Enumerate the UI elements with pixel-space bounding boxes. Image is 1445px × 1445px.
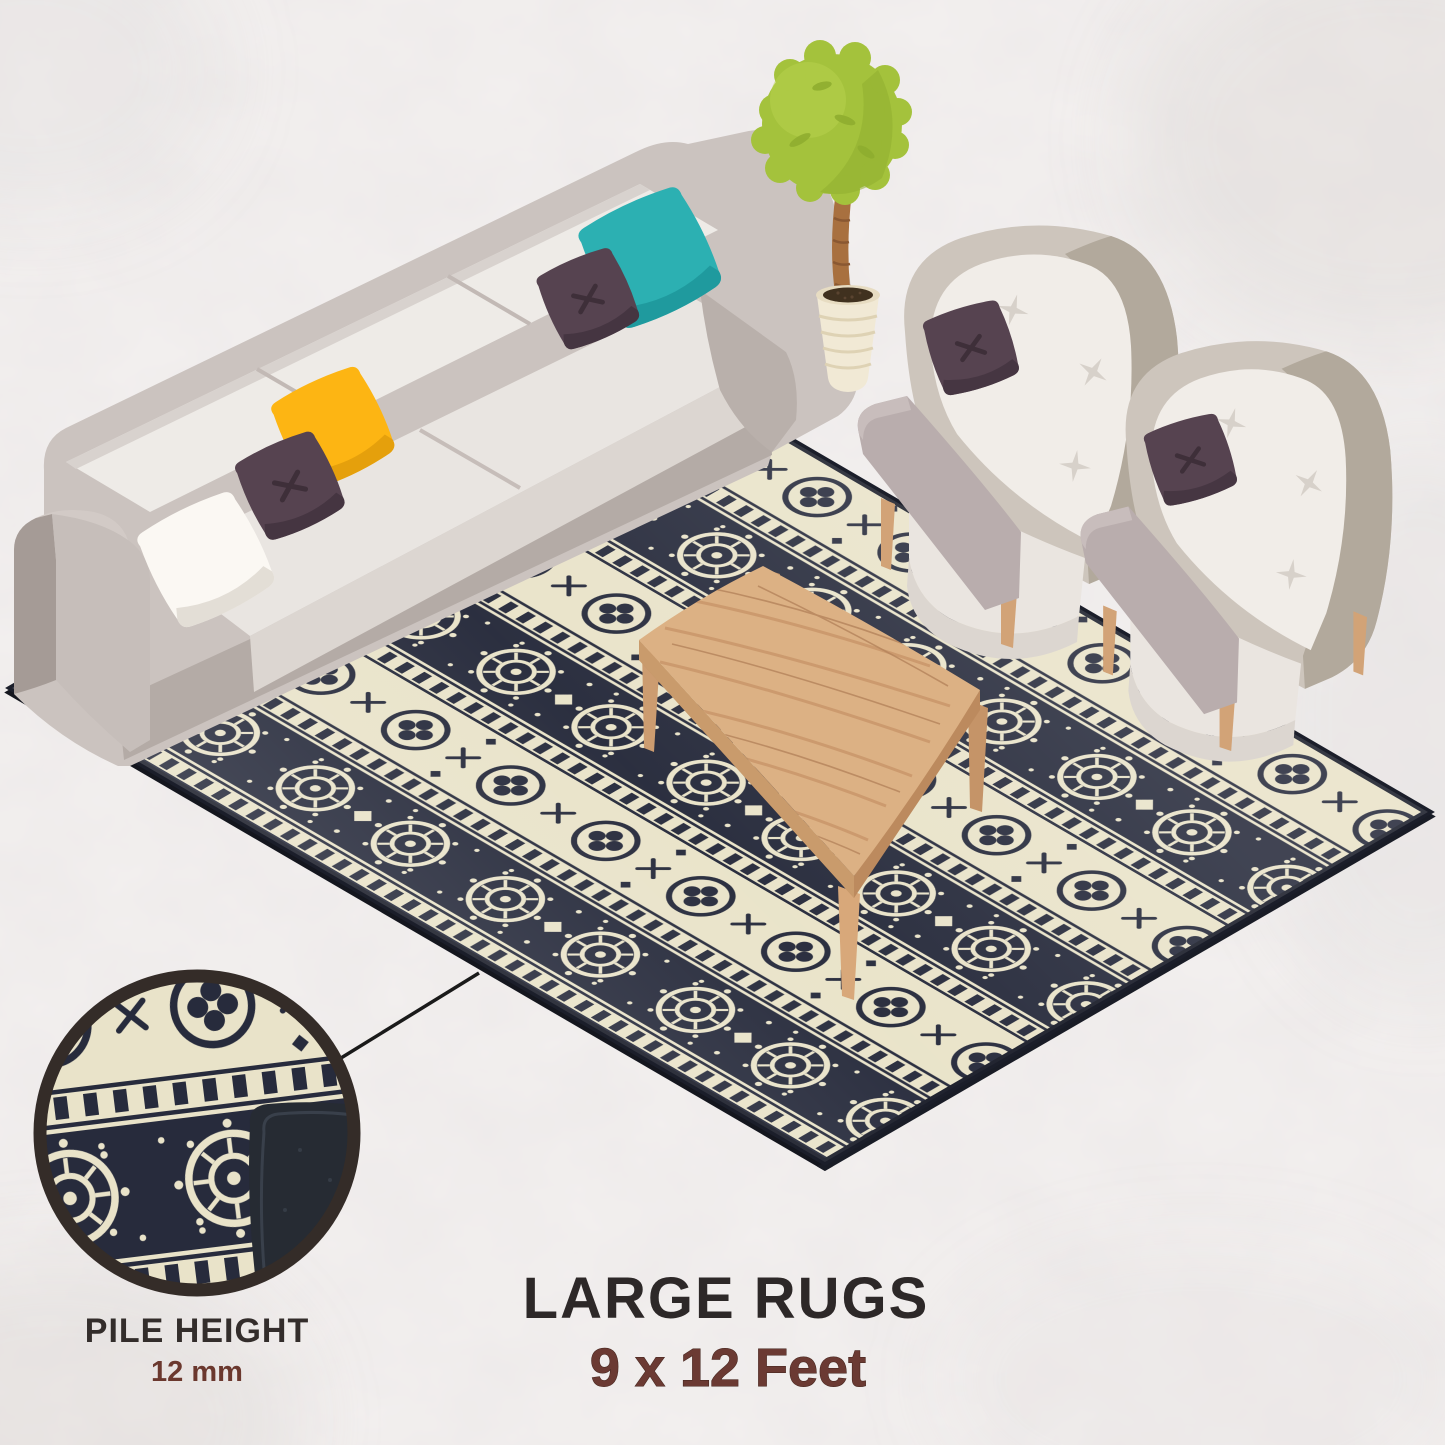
product-size: 9 x 12 Feet: [590, 1338, 866, 1398]
product-image: PILE HEIGHT 12 mm LARGE RUGS 9 x 12 Feet: [0, 0, 1445, 1445]
pile-height-label: PILE HEIGHT: [85, 1312, 309, 1350]
sofa-left-arm-side: [14, 514, 56, 694]
product-title: LARGE RUGS: [523, 1266, 930, 1331]
pile-height-value: 12 mm: [151, 1356, 243, 1388]
